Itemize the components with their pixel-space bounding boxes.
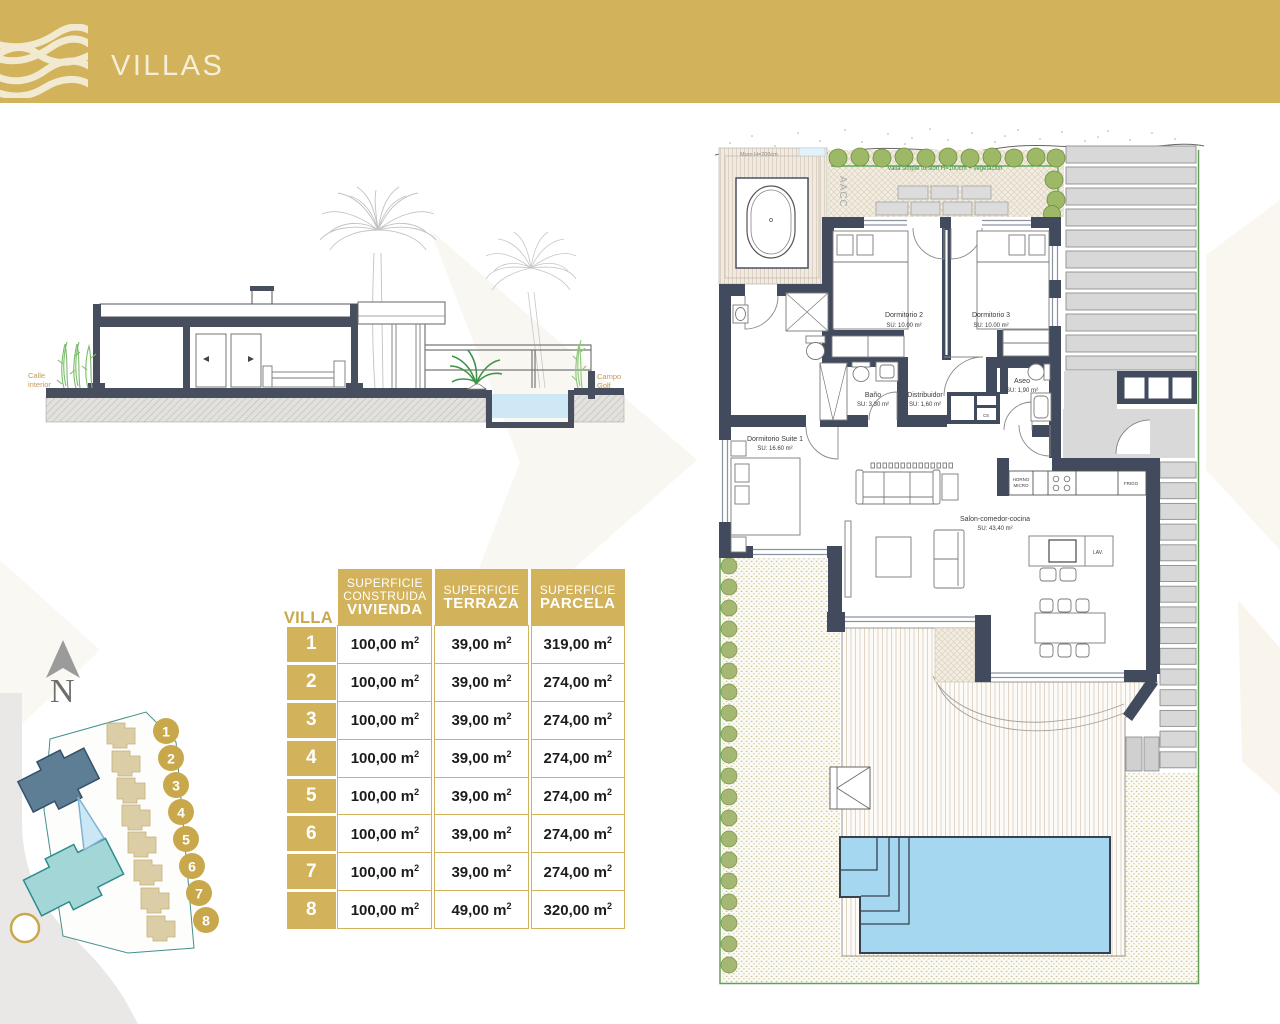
svg-text:CS: CS	[983, 413, 989, 418]
svg-text:SU: 16.60 m²: SU: 16.60 m²	[757, 446, 792, 452]
svg-text:8: 8	[202, 913, 210, 929]
svg-text:Golf: Golf	[597, 381, 612, 390]
svg-text:5: 5	[182, 832, 190, 848]
svg-text:Dormitorio Suite 1: Dormitorio Suite 1	[747, 436, 803, 443]
svg-text:AACC: AACC	[837, 176, 848, 208]
svg-text:Distribuidor: Distribuidor	[907, 392, 943, 399]
svg-text:SU: 43,40 m²: SU: 43,40 m²	[977, 526, 1012, 532]
svg-text:N: N	[50, 673, 75, 710]
svg-text:FRIGO: FRIGO	[1124, 481, 1139, 486]
svg-text:7: 7	[195, 886, 203, 902]
svg-text:Valla simple torsión H=100cm +: Valla simple torsión H=100cm + vegetació…	[888, 166, 1003, 172]
svg-text:Aseo: Aseo	[1014, 378, 1030, 385]
svg-text:HORNO: HORNO	[1013, 477, 1030, 482]
svg-text:SU: 10.00 m²: SU: 10.00 m²	[973, 323, 1008, 329]
svg-text:2: 2	[167, 751, 175, 767]
svg-text:SU: 1,60 m²: SU: 1,60 m²	[909, 402, 941, 408]
svg-text:Baño: Baño	[865, 392, 881, 399]
svg-text:Calle: Calle	[28, 371, 45, 380]
svg-text:Campo: Campo	[597, 372, 621, 381]
svg-text:1: 1	[162, 724, 170, 740]
svg-text:4: 4	[177, 805, 185, 821]
svg-text:SU: 3,30 m²: SU: 3,30 m²	[857, 402, 889, 408]
svg-text:3: 3	[172, 778, 180, 794]
svg-text:Dormitorio 2: Dormitorio 2	[885, 312, 923, 319]
svg-text:SU: 1,90 m²: SU: 1,90 m²	[1006, 388, 1038, 394]
svg-text:interior: interior	[28, 380, 51, 389]
svg-text:LAV.: LAV.	[1093, 550, 1103, 556]
svg-text:Dormitorio 3: Dormitorio 3	[972, 312, 1010, 319]
svg-text:SU: 10.00 m²: SU: 10.00 m²	[886, 323, 921, 329]
svg-text:Salon-comedor-cocina: Salon-comedor-cocina	[960, 516, 1030, 523]
svg-text:Muro H=200cm: Muro H=200cm	[740, 152, 778, 158]
svg-text:MICRO: MICRO	[1014, 483, 1029, 488]
svg-text:6: 6	[188, 859, 196, 875]
